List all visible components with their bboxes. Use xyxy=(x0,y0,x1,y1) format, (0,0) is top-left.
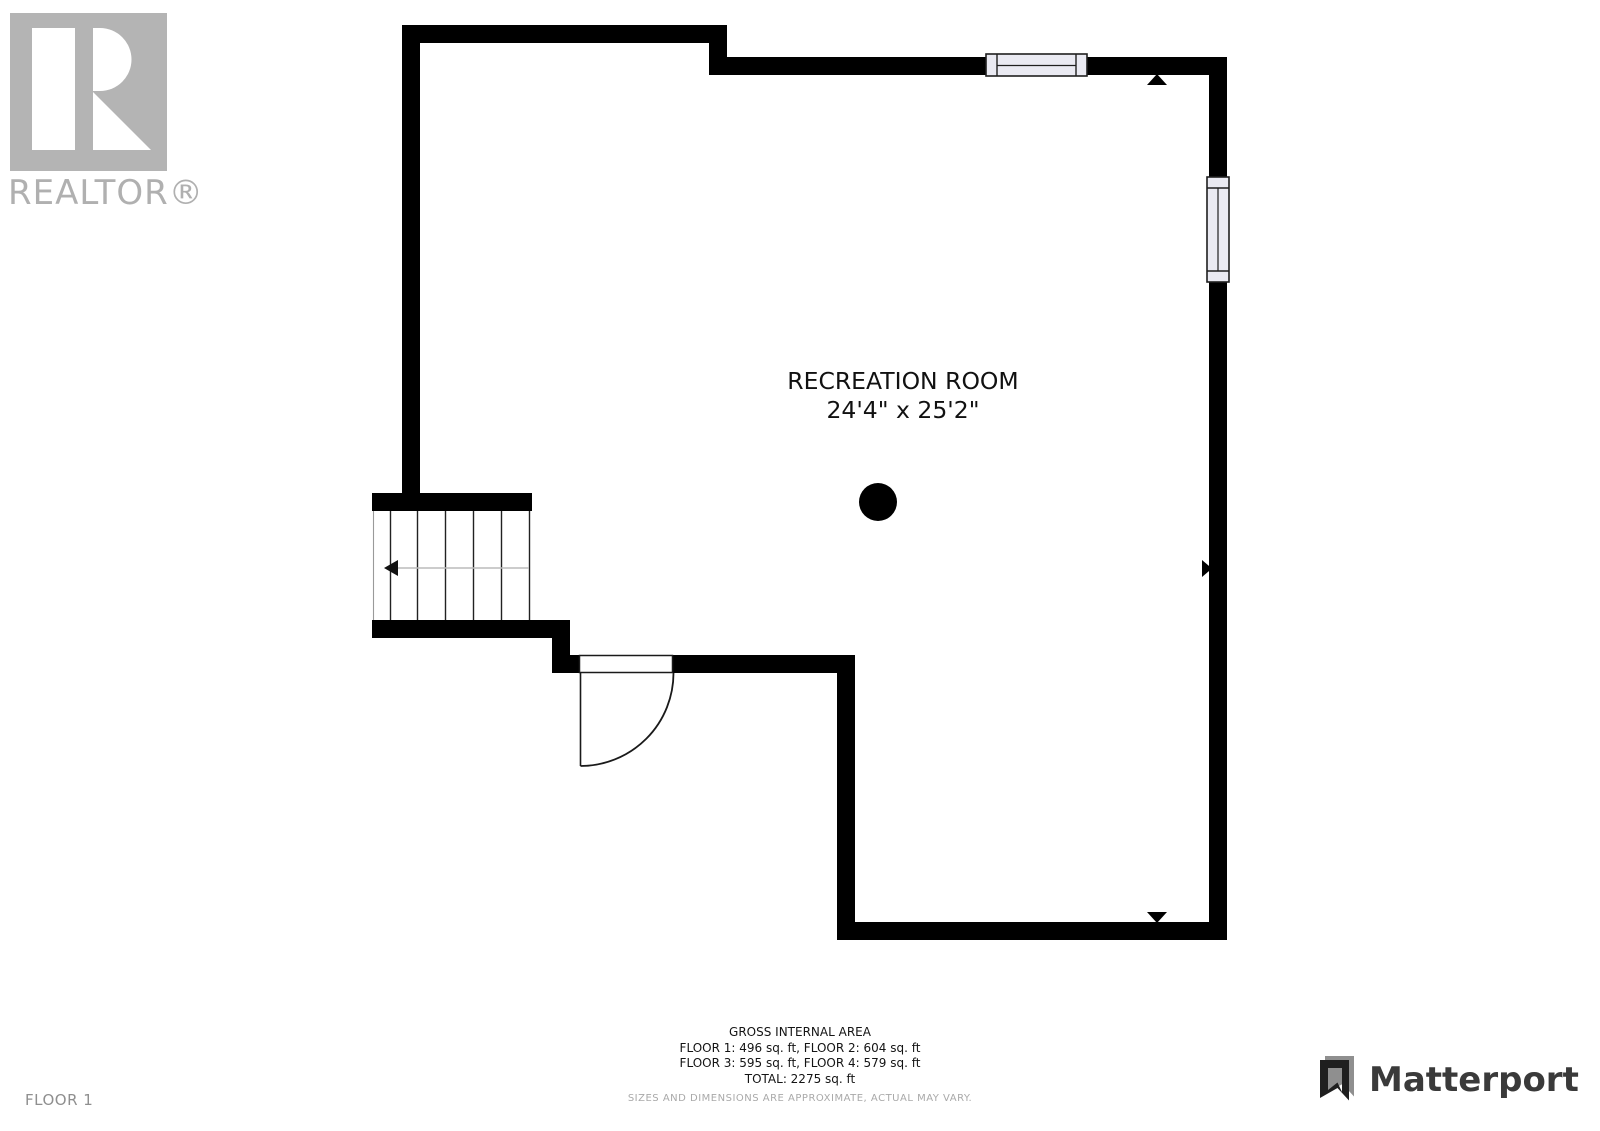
wall-stairs-top xyxy=(372,493,532,511)
door xyxy=(580,656,674,767)
floor-plan-drawing: RECREATION ROOM 24'4" x 25'2" xyxy=(0,0,1600,1131)
window-top xyxy=(986,54,1087,76)
door-swing-arc xyxy=(581,673,674,766)
scan-point-dot xyxy=(859,483,897,521)
entry-arrow-down xyxy=(1147,912,1167,923)
floor-label: FLOOR 1 xyxy=(25,1091,93,1109)
entry-arrow-up xyxy=(1147,74,1167,85)
wall-door-right xyxy=(673,655,855,673)
matterport-m-icon xyxy=(1316,1056,1360,1104)
wall-left xyxy=(402,25,420,511)
window-right xyxy=(1207,177,1229,282)
area-line-1: FLOOR 1: 496 sq. ft, FLOOR 2: 604 sq. ft xyxy=(0,1041,1600,1057)
wall-bottom-left xyxy=(837,655,855,940)
wall-bottom xyxy=(837,922,1227,940)
wall-top-left xyxy=(402,25,727,43)
matterport-logo: Matterport xyxy=(1316,1056,1579,1104)
wall-top-right xyxy=(709,57,1227,75)
area-title: GROSS INTERNAL AREA xyxy=(0,1025,1600,1041)
wall-door-stub xyxy=(570,655,580,673)
walls xyxy=(372,25,1227,940)
room-name-label: RECREATION ROOM xyxy=(787,367,1018,395)
floorplan-page: REALTOR® xyxy=(0,0,1600,1131)
wall-stairs-bottom xyxy=(372,620,570,638)
door-opening xyxy=(580,656,673,673)
matterport-wordmark: Matterport xyxy=(1369,1060,1579,1100)
room-dimensions-label: 24'4" x 25'2" xyxy=(826,396,979,424)
staircase xyxy=(374,511,530,620)
